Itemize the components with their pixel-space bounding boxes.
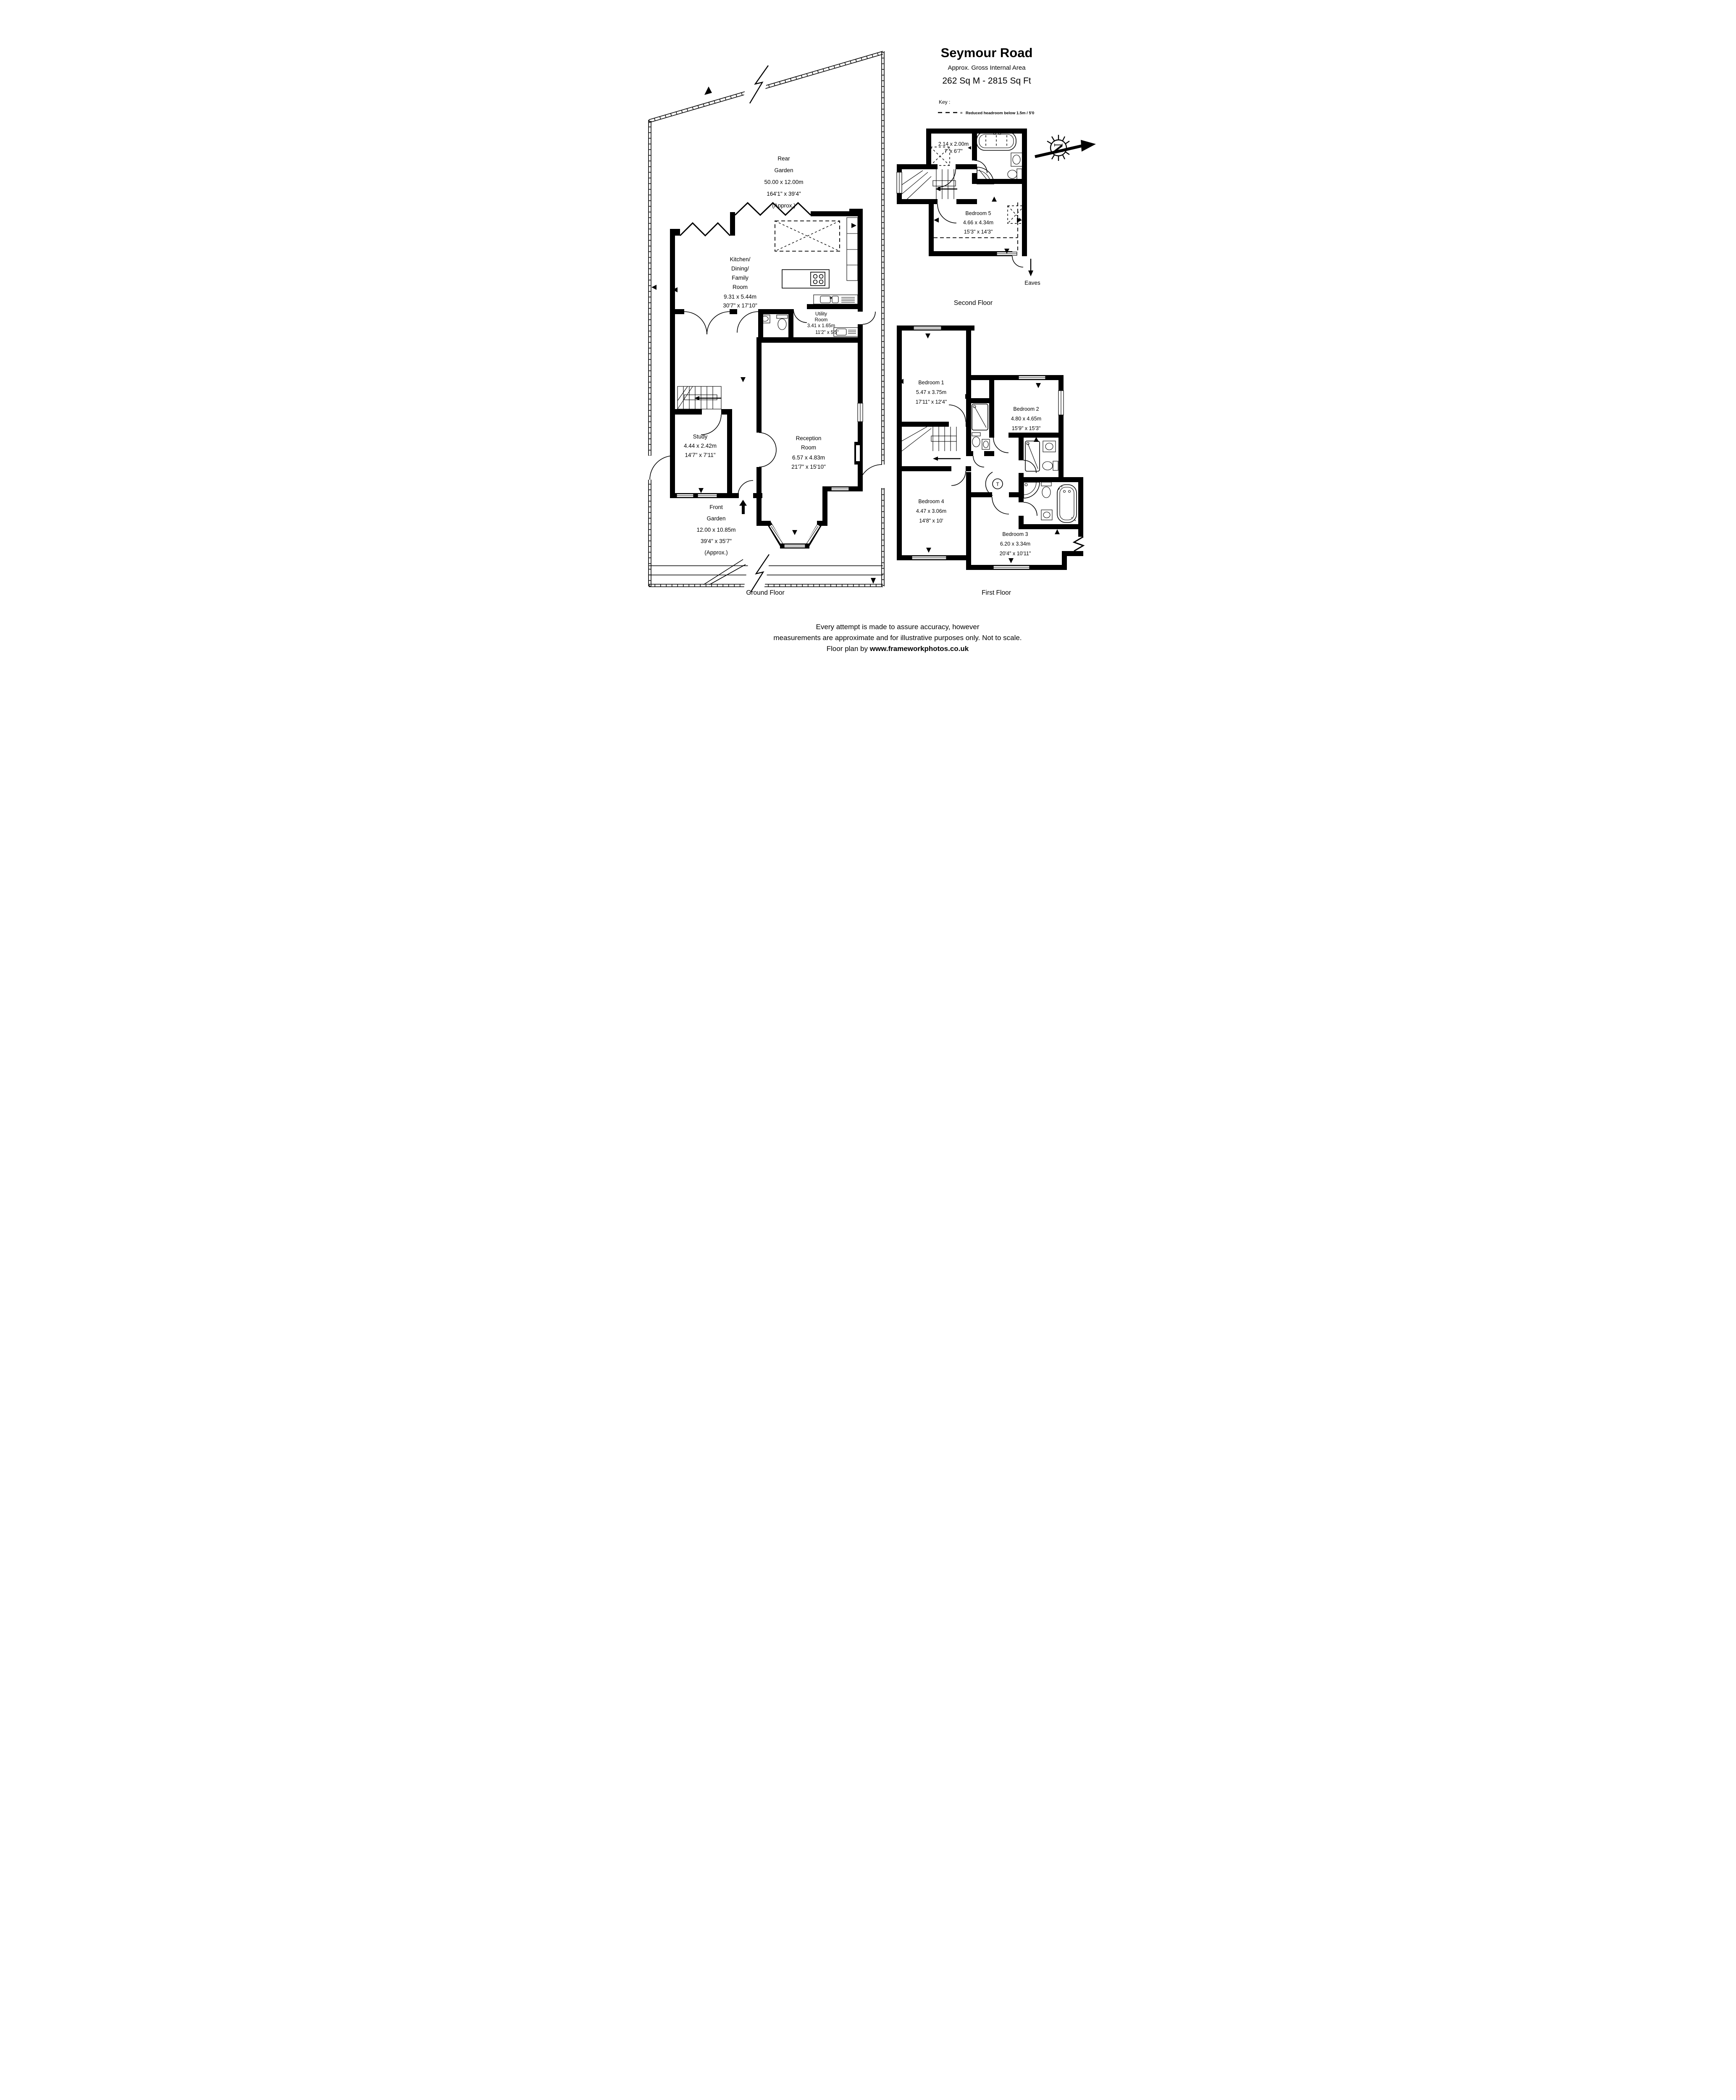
svg-text:11'2" x 5'5": 11'2" x 5'5" (815, 330, 839, 335)
staircase-ground (678, 386, 721, 409)
svg-text:30'7" x 17'10": 30'7" x 17'10" (723, 302, 757, 309)
footer: Every attempt is made to assure accuracy… (773, 623, 1022, 653)
front-room-dims: 2.14 x 2.00m (938, 141, 968, 147)
path-edge1-icon (704, 559, 743, 585)
reception-door-arc-icon (759, 450, 776, 467)
toilet-icon (1043, 461, 1058, 470)
family-bathroom (1019, 477, 1083, 529)
key-label: Key : (939, 99, 950, 105)
wall (730, 309, 737, 314)
svg-text:50.00 x 12.00m: 50.00 x 12.00m (764, 179, 803, 185)
wall (956, 199, 977, 204)
toilet-icon (972, 433, 980, 447)
side-gate-gap (647, 456, 652, 480)
svg-text:21'7" x 15'10": 21'7" x 15'10" (791, 464, 826, 470)
shower-icon (1025, 441, 1040, 471)
bay-break-icon (1074, 537, 1083, 551)
north-compass: N (1035, 135, 1096, 161)
bedroom4-label: Bedroom 4 (918, 499, 944, 504)
second-floor-title: Second Floor (953, 299, 992, 307)
roof-lantern-icon (775, 221, 840, 251)
wall (989, 433, 993, 438)
first-floor-title: First Floor (982, 589, 1011, 596)
wall (756, 343, 762, 433)
hall-door-arc-icon (737, 312, 758, 333)
page-title: Seymour Road (940, 45, 1032, 60)
key-legend: Key : = Reduced headroom below 1.5m / 5'… (938, 99, 1034, 115)
gross-area: 262 Sq M - 2815 Sq Ft (942, 76, 1031, 86)
side-door-gap (858, 312, 863, 324)
utility-label: Utility (815, 312, 827, 317)
first-floor-plan: T (897, 325, 1083, 596)
svg-text:164'1" x 39'4": 164'1" x 39'4" (767, 191, 801, 197)
wall (1022, 129, 1027, 256)
svg-text:6.57 x 4.83m: 6.57 x 4.83m (792, 454, 825, 461)
staircase-second (902, 169, 957, 204)
tank-label: T (996, 481, 999, 487)
wall (966, 451, 973, 456)
boundary-break-mask (742, 66, 770, 104)
wall (730, 212, 735, 236)
landing-door-arc-icon (938, 169, 956, 187)
bedroom1-door-arc-icon (949, 405, 966, 422)
wall (1019, 438, 1024, 460)
wall (1019, 477, 1083, 482)
wall-left (670, 229, 675, 498)
wall (972, 173, 977, 179)
svg-text:20'4" x 10'11": 20'4" x 10'11" (999, 551, 1031, 556)
wall (966, 422, 971, 427)
rear-garden-label: Rear (777, 155, 790, 162)
svg-text:39'4" x 35'7": 39'4" x 35'7" (700, 538, 731, 544)
key-equals: = (960, 111, 963, 115)
eaves-door-arc-icon (1012, 256, 1023, 267)
svg-text:3.41 x 1.65m: 3.41 x 1.65m (807, 323, 835, 328)
garden-boundary (647, 51, 885, 593)
svg-text:Garden: Garden (706, 515, 725, 522)
front-gate-gap (880, 465, 885, 488)
disclaimer-line2: measurements are approximate and for ill… (773, 634, 1022, 642)
svg-text:17'11" x 12'4": 17'11" x 12'4" (915, 399, 947, 405)
bath-icon (977, 132, 1016, 150)
eaves-arrow-head-icon (1028, 270, 1033, 276)
bedroom3-door-arc-icon (992, 497, 1009, 514)
wall (966, 466, 971, 471)
credit-url: www.frameworkphotos.co.uk (869, 645, 969, 653)
wall (897, 164, 938, 169)
wall (984, 451, 994, 456)
bedroom5-label: Bedroom 5 (965, 210, 991, 216)
second-floor-plan: 2.14 x 2.00m 7' x 6'7" Bedroom 5 4.66 x … (897, 129, 1040, 307)
bedroom3-label: Bedroom 3 (1002, 531, 1028, 537)
title-block: Seymour Road Approx. Gross Internal Area… (940, 45, 1032, 86)
wall (807, 304, 863, 309)
wall (897, 325, 902, 560)
front-gate-arrow-icon (871, 578, 876, 584)
wall (756, 467, 762, 523)
reception-door-arc-icon (759, 433, 776, 450)
ground-floor-title: Ground Floor (746, 589, 784, 596)
utility-door-arc-icon (793, 309, 807, 323)
bedroom2-door-arc-icon (993, 438, 1009, 453)
eaves-label: Eaves (1024, 280, 1040, 286)
credit-prefix: Floor plan by (826, 645, 869, 653)
reception-room (756, 337, 863, 549)
path-edge2-icon (709, 564, 746, 585)
wall-right (858, 211, 863, 307)
rear-boundary-top2 (649, 54, 883, 123)
bedroom2-label: Bedroom 2 (1013, 406, 1039, 412)
basin-icon (1041, 510, 1052, 520)
wall (1078, 477, 1083, 524)
wall (971, 375, 1064, 380)
wall (956, 164, 977, 169)
wall (1019, 516, 1024, 524)
wall (966, 472, 971, 570)
page-subtitle: Approx. Gross Internal Area (948, 64, 1026, 71)
wall (971, 492, 992, 497)
entry-arrow-icon (739, 500, 747, 514)
tank-cupboard: T (985, 472, 1003, 496)
bifold-door-icon (680, 223, 730, 236)
toilet-icon (777, 315, 788, 330)
front-door-arc-icon (738, 480, 753, 496)
bedroom5-door-arc-icon (938, 204, 956, 223)
toilet-icon (1041, 482, 1051, 498)
shower-icon (972, 404, 988, 430)
staircase-first (897, 405, 971, 486)
svg-text:Room: Room (801, 444, 816, 451)
shower-icon (1024, 482, 1040, 498)
svg-text:14'7" x 7'11": 14'7" x 7'11" (685, 452, 715, 458)
svg-text:9.31 x 5.44m: 9.31 x 5.44m (723, 294, 756, 300)
wall (897, 422, 949, 427)
side-door-arc-icon (863, 312, 875, 324)
floorplan-page: Seymour Road Approx. Gross Internal Area… (637, 0, 1099, 654)
wall (727, 409, 732, 498)
study-door-arc-icon (701, 415, 721, 435)
bay-window-icon (769, 523, 820, 549)
wall (1019, 524, 1083, 529)
key-text: Reduced headroom below 1.5m / 5'0 (966, 111, 1034, 115)
eaves-dashed-icon (930, 147, 1024, 250)
boundary-arrow-icon (704, 87, 712, 95)
double-door-arc-icon (684, 312, 707, 334)
front-garden-label: Front (709, 504, 723, 510)
svg-text:4.66 x 4.34m: 4.66 x 4.34m (963, 220, 993, 226)
svg-text:Room: Room (732, 284, 747, 290)
wall (989, 380, 994, 438)
study-label: Study (693, 433, 707, 440)
front-break-mask (743, 555, 771, 593)
bath-icon (1057, 485, 1077, 522)
svg-text:4.80 x 4.65m: 4.80 x 4.65m (1011, 416, 1041, 422)
bathroom-door-arc-icon (1024, 502, 1037, 516)
bedroom1-label: Bedroom 1 (918, 380, 944, 386)
ground-floor-plan: Rear Garden 50.00 x 12.00m 164'1" x 39'4… (651, 155, 875, 596)
basin-icon (1043, 441, 1056, 452)
credit-line: Floor plan by www.frameworkphotos.co.uk (826, 645, 969, 653)
svg-text:(Approx.): (Approx.) (704, 549, 728, 556)
wall (1078, 524, 1083, 537)
disclaimer-line1: Every attempt is made to assure accuracy… (816, 623, 979, 631)
svg-text:12.00 x 10.85m: 12.00 x 10.85m (696, 527, 735, 533)
wall (929, 199, 938, 204)
svg-text:Dining/: Dining/ (731, 265, 749, 272)
kitchen-island-icon (782, 270, 829, 288)
svg-text:14'8" x 10': 14'8" x 10' (919, 518, 943, 524)
wall (929, 204, 934, 256)
basin-icon (1011, 153, 1022, 166)
wall (972, 129, 977, 160)
rear-boundary-hatch-icon (649, 52, 883, 121)
kitchen-label: Kitchen/ (730, 256, 750, 262)
ensuite-door-arc-icon (973, 456, 984, 467)
wall (1062, 551, 1067, 570)
svg-text:(Approx.): (Approx.) (772, 202, 796, 209)
basin-icon (982, 439, 990, 449)
svg-text:7' x 6'7": 7' x 6'7" (944, 148, 962, 154)
wall (670, 409, 702, 415)
bedroom4-door-arc-icon (951, 471, 966, 486)
svg-text:15'9" x 15'3": 15'9" x 15'3" (1011, 425, 1040, 431)
svg-text:15'3" x 14'3": 15'3" x 14'3" (964, 229, 993, 235)
double-door-arc-icon (707, 312, 730, 334)
wall (670, 309, 684, 314)
svg-text:5.47 x 3.75m: 5.47 x 3.75m (916, 389, 946, 395)
wall (966, 325, 971, 456)
svg-text:Family: Family (732, 275, 749, 281)
svg-text:4.44 x 2.42m: 4.44 x 2.42m (683, 443, 716, 449)
wall (966, 398, 989, 403)
wall (1023, 251, 1027, 256)
svg-text:6.20 x 3.34m: 6.20 x 3.34m (1000, 541, 1030, 547)
svg-text:4.47 x 3.06m: 4.47 x 3.06m (916, 508, 946, 514)
wall (1009, 492, 1024, 497)
svg-text:Garden: Garden (774, 167, 793, 173)
wall (822, 486, 827, 525)
wall (1058, 440, 1064, 477)
reception-label: Reception (796, 435, 821, 441)
svg-text:Room: Room (814, 318, 827, 323)
kitchen-sink-icon (814, 295, 858, 304)
wall (756, 337, 863, 343)
toilet-icon (1008, 169, 1022, 180)
north-arrow-head-icon (1081, 140, 1096, 152)
wall (1009, 433, 1064, 438)
wall (897, 466, 951, 471)
